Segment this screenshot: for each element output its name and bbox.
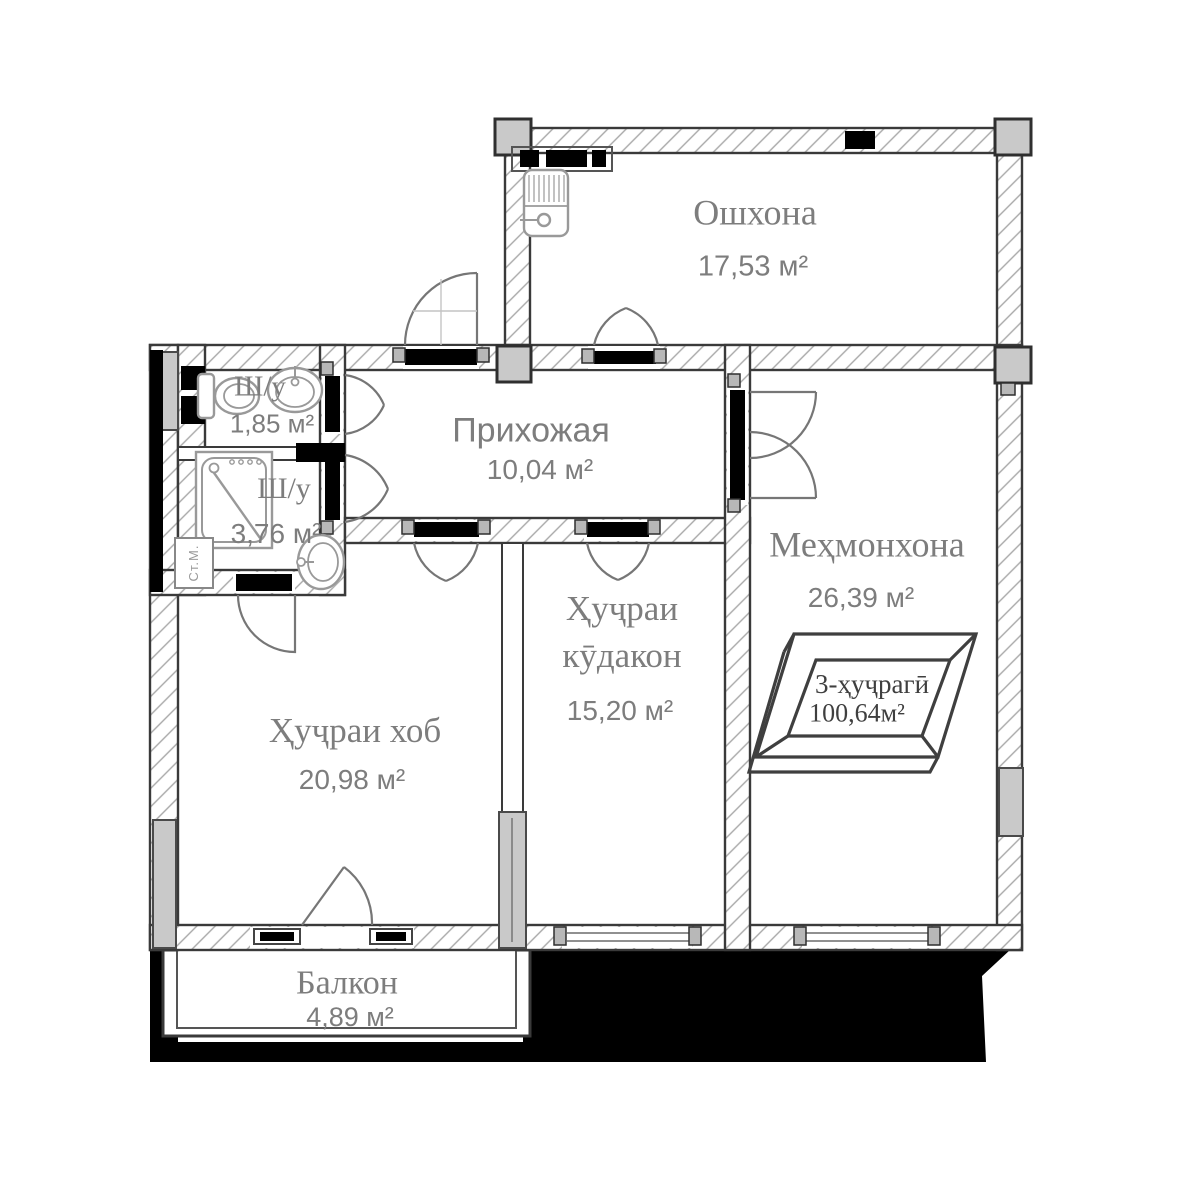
room-label-wc1: Ш/у	[234, 370, 286, 405]
room-label-wc2: Ш/у	[257, 471, 311, 507]
kitchen-door-icon	[594, 308, 658, 345]
bedroom-door-icon	[414, 543, 478, 581]
floor-plan-canvas: Ошхона 17,53 м² Прихожая 10,04 м² Меҳмон…	[0, 0, 1181, 1181]
kitchen-sink-icon	[520, 170, 568, 236]
room-area-children: 15,20 м²	[567, 694, 673, 728]
room-label-living: Меҳмонхона	[769, 523, 964, 566]
room-label-children: Ҳуҷраи кӯдакон	[517, 585, 727, 680]
room-area-balcony: 4,89 м²	[306, 1001, 394, 1033]
room-area-wc1: 1,85 м²	[230, 408, 314, 439]
room-area-living: 26,39 м²	[808, 581, 914, 615]
wc-bedroom-door-icon	[238, 595, 295, 652]
children-door-icon	[587, 543, 649, 580]
room-area-kitchen: 17,53 м²	[698, 250, 808, 285]
room-label-balcony: Балкон	[296, 964, 398, 1005]
wc2-door-icon	[345, 455, 388, 522]
badge-total-area: 100,64м²	[809, 697, 905, 728]
room-area-wc2: 3,76 м²	[231, 517, 322, 551]
washing-machine-label: Ст.М.	[186, 545, 202, 582]
room-area-bedroom: 20,98 м²	[299, 763, 405, 797]
entrance-door-icon	[405, 273, 477, 345]
room-label-hallway: Прихожая	[452, 411, 610, 452]
room-label-kitchen: Ошхона	[693, 191, 817, 234]
room-label-bedroom: Ҳуҷраи хоб	[269, 710, 441, 752]
wc1-door-icon	[345, 375, 384, 434]
room-area-hallway: 10,04 м²	[487, 453, 593, 487]
badge-type-label: 3-ҳуҷрагӣ	[815, 668, 929, 700]
balcony-door-icon	[302, 867, 372, 925]
double-door-icon	[750, 392, 816, 498]
